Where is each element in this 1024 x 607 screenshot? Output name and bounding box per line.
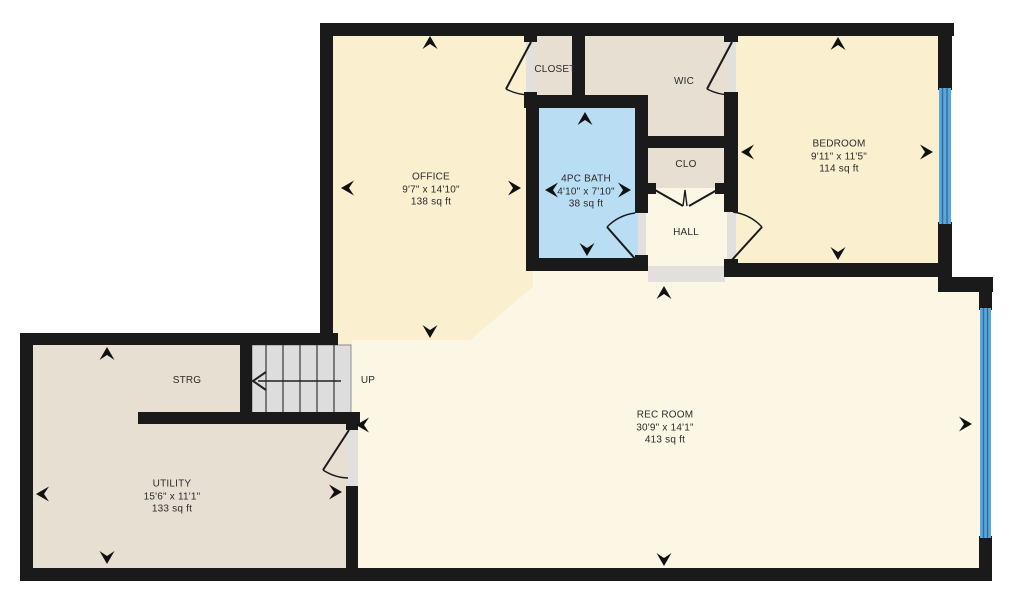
stairs-direction-text: UP [361,375,375,388]
room-dimensions: 4'10" x 7'10" [557,186,614,199]
wall-segment [724,92,738,212]
wall-segment [346,486,358,568]
bedroom-window [939,88,951,224]
room-label-office: OFFICE 9'7" x 14'10" 138 sq ft [402,171,459,209]
wall-segment [346,412,358,430]
room-dimensions: 15'6" x 11'1" [144,491,201,504]
room-name: BEDROOM [811,138,867,151]
room-label-rec-room: REC ROOM 30'9" x 14'1" 413 sq ft [636,409,693,447]
wall-segment [20,333,338,345]
wall-segment [20,568,991,581]
wall-segment [938,277,993,292]
room-name: CLO [675,159,696,172]
wall-segment [979,536,992,581]
room-label-bath: 4PC BATH 4'10" x 7'10" 38 sq ft [557,173,614,211]
room-label-closet: CLOSET [534,64,575,77]
wall-segment [524,95,648,108]
bedroom-door-threshold [727,210,736,261]
stairs-up-label: UP [361,375,375,388]
room-area: 138 sq ft [402,196,459,209]
room-name: OFFICE [402,171,459,184]
room-label-hall: HALL [673,227,699,240]
wall-segment [938,23,952,90]
wall-segment [320,23,333,345]
hall-opening-threshold [648,266,725,282]
room-name: UTILITY [144,478,201,491]
wall-segment [138,412,360,424]
floor-plan: OFFICE 9'7" x 14'10" 138 sq ft CLOSET WI… [0,0,1024,607]
floor-plan-drawing [0,0,1024,607]
rec-room-window [980,308,991,538]
wall-segment [635,255,648,271]
room-label-clo: CLO [675,159,696,172]
wall-segment [320,23,954,36]
wall-segment [526,103,539,270]
room-name: HALL [673,227,699,240]
room-label-strg: STRG [173,375,202,388]
room-area: 114 sq ft [811,163,867,176]
wall-segment [20,333,33,581]
wall-segment [240,345,252,418]
room-name: CLOSET [534,64,575,77]
room-area: 133 sq ft [144,503,201,516]
wall-segment [640,183,656,194]
room-dimensions: 9'7" x 14'10" [402,184,459,197]
utility-door-threshold [346,428,358,488]
room-name: REC ROOM [636,409,693,422]
room-name: STRG [173,375,202,388]
room-label-bedroom: BEDROOM 9'11" x 11'5" 114 sq ft [811,138,867,176]
room-dimensions: 9'11" x 11'5" [811,151,867,164]
wall-segment [526,258,648,271]
wall-segment [640,136,738,148]
wall-segment [524,32,537,42]
room-area: 413 sq ft [636,434,693,447]
room-name: WIC [674,76,694,89]
bath-door-threshold [638,210,646,258]
room-area: 38 sq ft [557,198,614,211]
wall-segment [724,32,738,42]
wall-segment [635,103,648,213]
room-name: 4PC BATH [557,173,614,186]
room-label-wic: WIC [674,76,694,89]
room-dimensions: 30'9" x 14'1" [636,422,693,435]
room-label-utility: UTILITY 15'6" x 11'1" 133 sq ft [144,478,201,516]
wall-segment [725,263,952,277]
wall-segment [938,222,952,280]
wall-segment [979,290,992,310]
